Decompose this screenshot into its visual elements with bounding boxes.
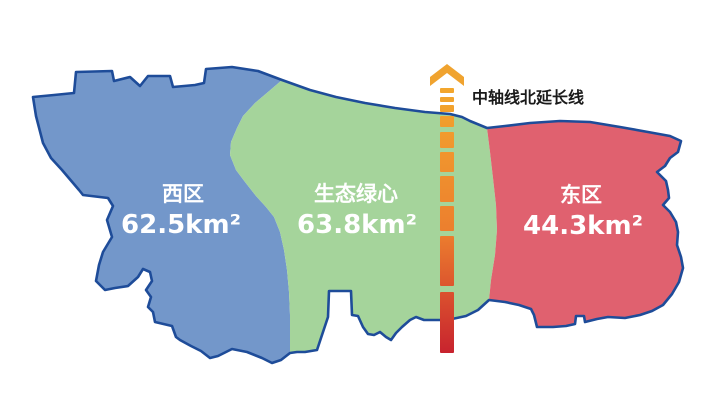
region-green-heart-area: 63.8km² (297, 210, 417, 240)
region-green-heart-name: 生态绿心 (314, 182, 398, 206)
axis-label: 中轴线北延长线 (472, 88, 584, 107)
region-east-name: 东区 (560, 183, 602, 207)
region-west-name: 西区 (162, 182, 204, 206)
district-map: 中轴线北延长线 西区 62.5km² 生态绿心 63.8km² 东区 44.3k… (0, 0, 718, 407)
region-west-area: 62.5km² (121, 210, 241, 240)
region-east-area: 44.3km² (523, 211, 643, 241)
region-labels: 西区 62.5km² 生态绿心 63.8km² 东区 44.3km² (121, 182, 643, 241)
axis-arrow-icon (430, 64, 464, 86)
map-canvas: 中轴线北延长线 西区 62.5km² 生态绿心 63.8km² 东区 44.3k… (0, 0, 718, 407)
